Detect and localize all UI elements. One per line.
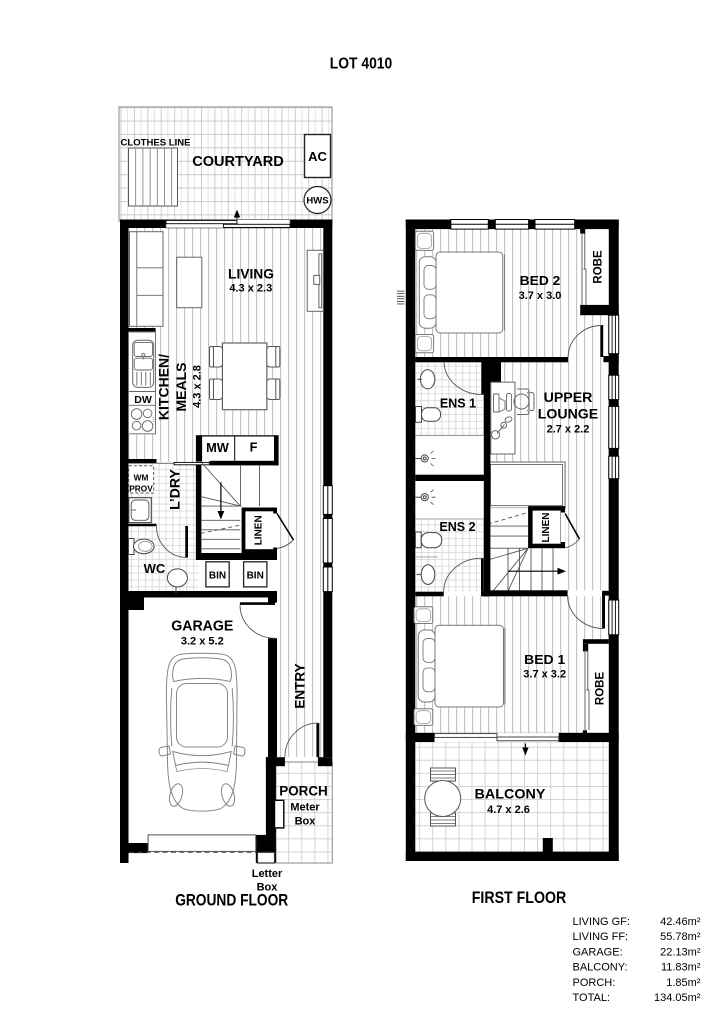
svg-text:LIVING FF:: LIVING FF: [573,931,629,943]
svg-text:PORCH: PORCH [279,784,328,799]
svg-text:3.2 x 5.2: 3.2 x 5.2 [181,636,224,648]
svg-text:Letter: Letter [252,868,283,880]
svg-text:3.7 x 3.0: 3.7 x 3.0 [519,290,562,302]
svg-text:BALCONY: BALCONY [475,787,546,802]
svg-text:Meter: Meter [290,802,320,814]
svg-text:AC: AC [308,149,327,164]
svg-text:CLOTHES LINE: CLOTHES LINE [121,138,191,148]
svg-text:LINEN: LINEN [541,513,552,543]
svg-text:2.7 x 2.2: 2.7 x 2.2 [547,424,590,436]
svg-text:42.46m²: 42.46m² [660,916,701,928]
svg-text:ENS 2: ENS 2 [439,520,475,534]
svg-text:11.83m²: 11.83m² [661,962,701,974]
svg-text:LIVING: LIVING [228,266,274,281]
svg-text:LIVING GF:: LIVING GF: [573,916,630,928]
svg-text:BIN: BIN [209,571,226,582]
svg-text:BED 1: BED 1 [524,652,565,667]
svg-text:22.13m²: 22.13m² [660,946,701,958]
svg-text:MW: MW [206,440,230,455]
svg-text:ROBE: ROBE [595,672,607,706]
svg-text:MEALS: MEALS [173,363,189,412]
svg-text:4.3 x 2.3: 4.3 x 2.3 [229,283,272,295]
svg-text:TOTAL:: TOTAL: [573,992,611,1004]
svg-text:COURTYARD: COURTYARD [192,154,284,170]
svg-text:GROUND FLOOR: GROUND FLOOR [175,892,288,910]
svg-text:4.3 x 2.8: 4.3 x 2.8 [192,365,204,408]
svg-text:HWS: HWS [306,196,328,207]
svg-text:F: F [250,440,258,455]
svg-text:134.05m²: 134.05m² [654,992,701,1004]
svg-text:||||||: |||||| [396,290,405,305]
svg-text:ENS 1: ENS 1 [440,397,476,411]
svg-text:Box: Box [295,816,317,828]
svg-text:UPPER: UPPER [544,390,593,405]
svg-text:WC: WC [144,561,166,576]
svg-text:L’DRY: L’DRY [167,468,183,509]
svg-text:BED 2: BED 2 [520,273,561,288]
svg-text:WM: WM [134,473,149,483]
svg-text:PORCH:: PORCH: [573,977,616,989]
svg-text:1.85m²: 1.85m² [666,977,701,989]
svg-text:55.78m²: 55.78m² [660,931,701,943]
svg-text:LINEN: LINEN [254,515,265,545]
svg-text:BALCONY:: BALCONY: [573,962,628,974]
svg-text:LOT 4010: LOT 4010 [330,55,393,72]
svg-text:KITCHEN/: KITCHEN/ [156,354,172,420]
svg-text:ROBE: ROBE [593,250,605,284]
svg-text:DW: DW [134,394,152,406]
svg-text:GARAGE: GARAGE [171,619,234,635]
svg-text:LOUNGE: LOUNGE [538,407,598,422]
svg-text:BIN: BIN [247,571,264,582]
svg-text:4.7 x 2.6: 4.7 x 2.6 [487,804,530,816]
svg-text:GARAGE:: GARAGE: [573,946,623,958]
svg-text:ENTRY: ENTRY [293,663,308,708]
svg-text:FIRST FLOOR: FIRST FLOOR [472,889,567,907]
svg-text:PROV: PROV [129,483,153,493]
svg-text:3.7 x 3.2: 3.7 x 3.2 [523,669,566,681]
